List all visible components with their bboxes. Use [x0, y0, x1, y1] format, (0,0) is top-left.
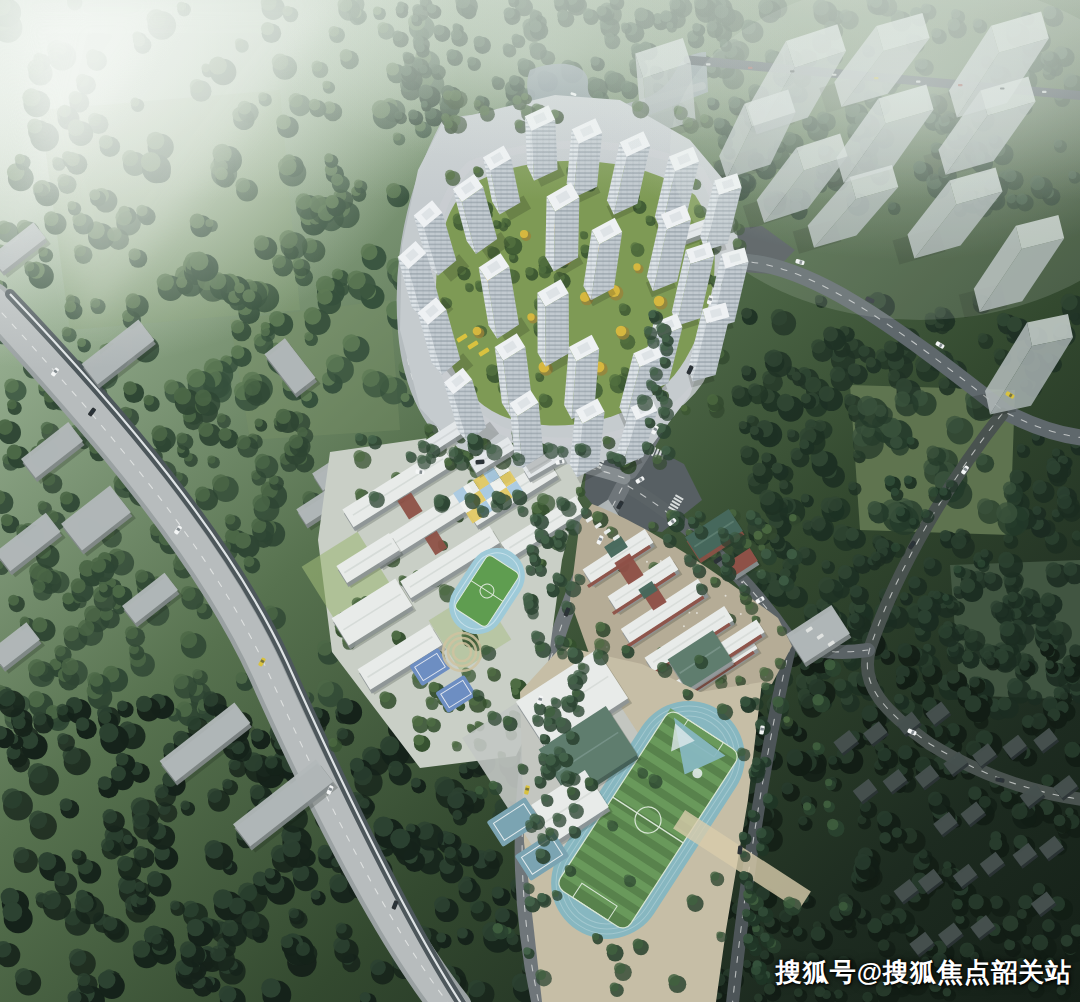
aerial-site-rendering: 搜狐号@搜狐焦点韶关站	[0, 0, 1080, 1002]
watermark: 搜狐号@搜狐焦点韶关站	[776, 955, 1072, 990]
rendering-canvas	[0, 0, 1080, 1002]
